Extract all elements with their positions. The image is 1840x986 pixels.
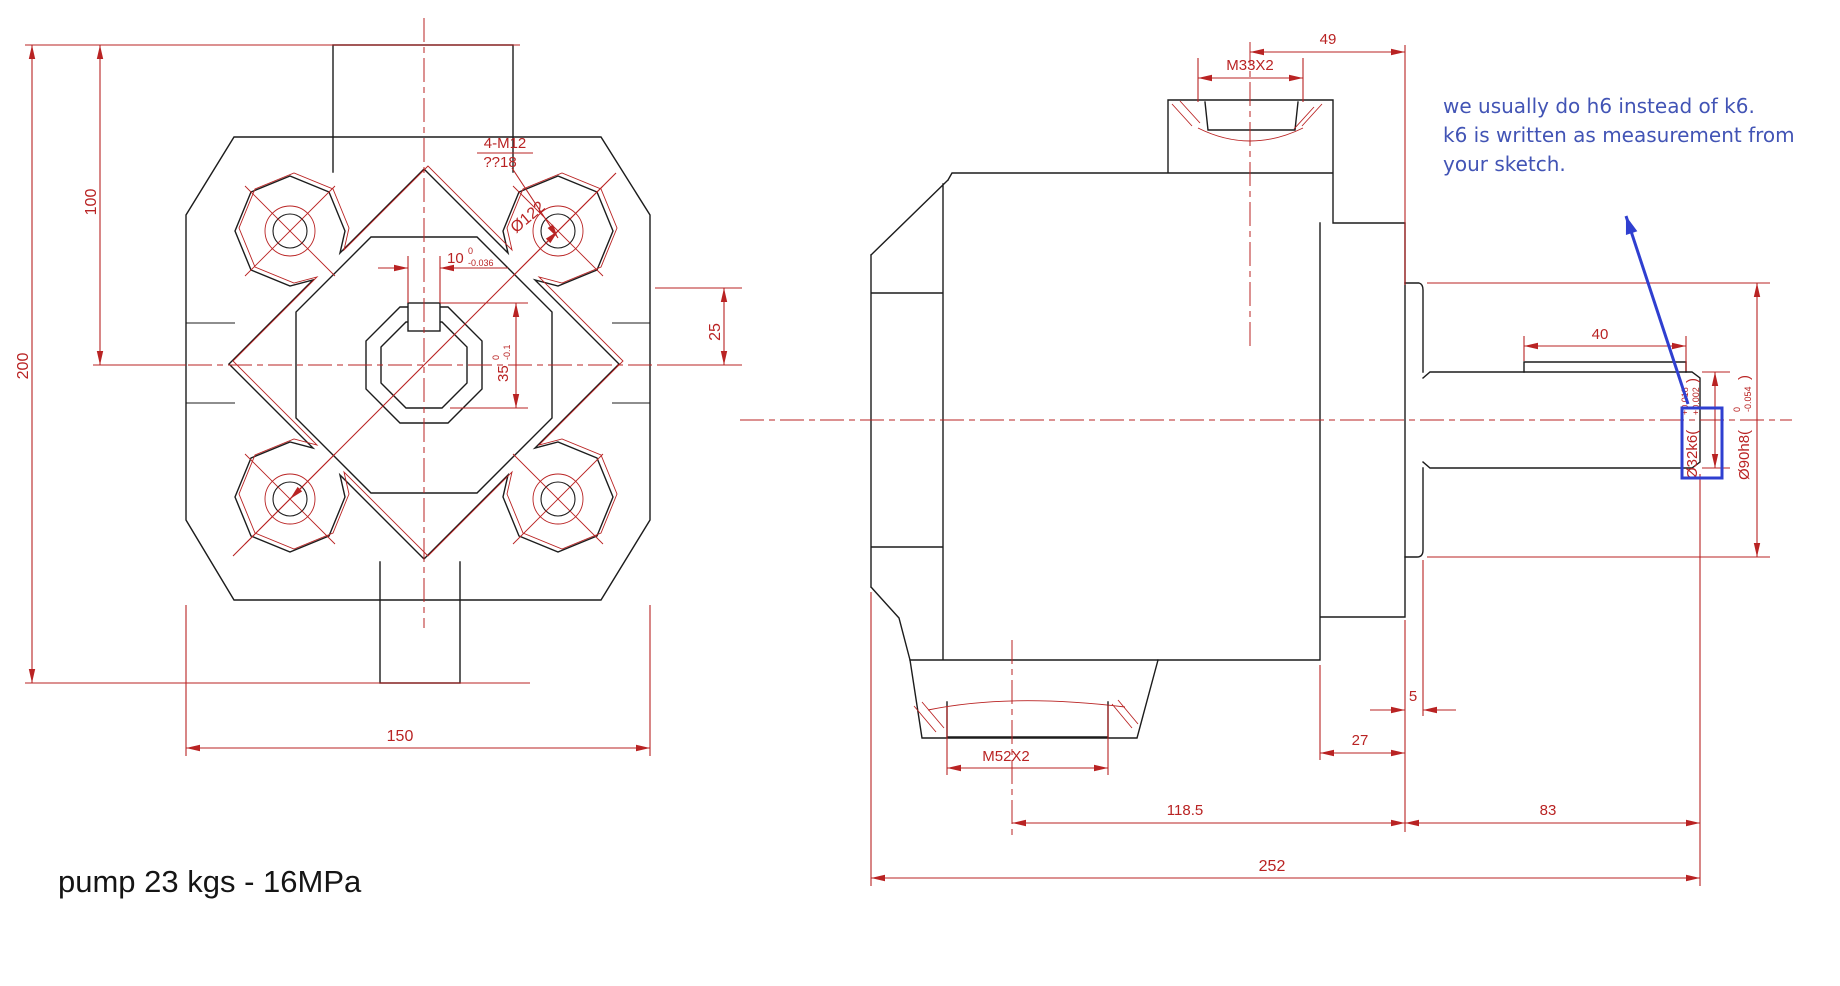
side-dim-27: 27 <box>1352 732 1369 749</box>
front-dim-150: 150 <box>387 728 414 745</box>
side-dim-49: 49 <box>1320 31 1337 48</box>
side-thread-top: M33X2 <box>1226 57 1274 74</box>
side-spigot-dia-upper: 0 <box>1732 407 1742 412</box>
front-dim-25: 25 <box>707 323 724 341</box>
side-shaft-dia-nominal: Ø32k6( <box>1684 430 1701 479</box>
side-dim-5: 5 <box>1409 688 1417 705</box>
side-spigot-dia-lower: -0.054 <box>1743 386 1753 412</box>
note-line-1: we usually do h6 instead of k6. <box>1443 94 1755 118</box>
pump-technical-drawing: 200 100 150 25 4-M12 ??18 Ø122 10 0 -0.0… <box>0 0 1840 986</box>
front-dimensions <box>25 18 742 756</box>
side-body-outline <box>871 100 1405 738</box>
side-thread-bottom: M52X2 <box>982 748 1030 765</box>
front-keyway-upper: 0 <box>468 246 473 256</box>
front-body-outline <box>186 45 650 683</box>
side-view: 49 M33X2 40 5 27 M52X2 118.5 83 252 Ø32k… <box>740 31 1792 886</box>
side-spigot-dia-nominal: Ø90h8( <box>1736 430 1753 480</box>
front-bore-nominal: 35 <box>495 365 512 382</box>
front-labels: 200 100 150 25 4-M12 ??18 Ø122 10 0 -0.0… <box>15 135 724 745</box>
front-view: 200 100 150 25 4-M12 ??18 Ø122 10 0 -0.0… <box>15 18 742 756</box>
side-spigot-dia-close: ) <box>1736 375 1753 380</box>
front-bolt-callout: 4-M12 <box>484 135 527 152</box>
side-dim-118-5: 118.5 <box>1167 802 1203 819</box>
side-labels: 49 M33X2 40 5 27 M52X2 118.5 83 252 Ø32k… <box>982 31 1753 875</box>
side-spigot-dia-label: Ø90h8( 0 -0.054 ) <box>1732 375 1753 480</box>
side-dim-83: 83 <box>1540 802 1557 819</box>
side-key <box>1524 362 1686 372</box>
note-line-2: k6 is written as measurement from <box>1443 123 1795 147</box>
side-dimensions <box>740 42 1792 886</box>
side-shaft-dia-close: ) <box>1684 378 1701 383</box>
front-bolt-depth: ??18 <box>483 154 516 171</box>
front-dim-200: 200 <box>15 353 32 380</box>
side-shaft-dia-lower: +0.002 <box>1691 387 1701 415</box>
front-bore-upper: 0 <box>491 355 501 360</box>
front-dim-100: 100 <box>83 189 100 216</box>
side-port-threads <box>914 101 1322 732</box>
front-keyway-nominal: 10 <box>447 250 464 267</box>
side-dim-252: 252 <box>1259 858 1286 875</box>
side-dim-40: 40 <box>1592 326 1609 343</box>
annotation-arrow <box>1626 216 1688 404</box>
note-line-3: your sketch. <box>1443 152 1566 176</box>
drawing-svg: 200 100 150 25 4-M12 ??18 Ø122 10 0 -0.0… <box>0 0 1840 986</box>
front-keyway-lower: -0.036 <box>468 258 494 268</box>
footer-spec-label: pump 23 kgs - 16MPa <box>58 864 362 899</box>
front-bore-lower: -0.1 <box>502 344 512 360</box>
